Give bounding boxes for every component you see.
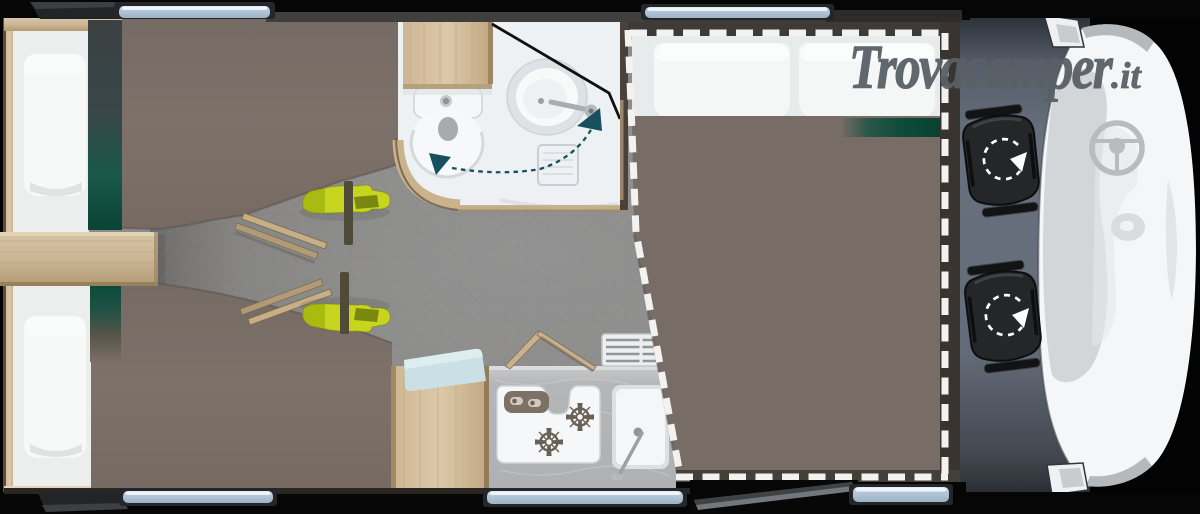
svg-text:.it: .it	[1111, 56, 1143, 97]
svg-text:Trovacamper: Trovacamper	[849, 34, 1113, 102]
